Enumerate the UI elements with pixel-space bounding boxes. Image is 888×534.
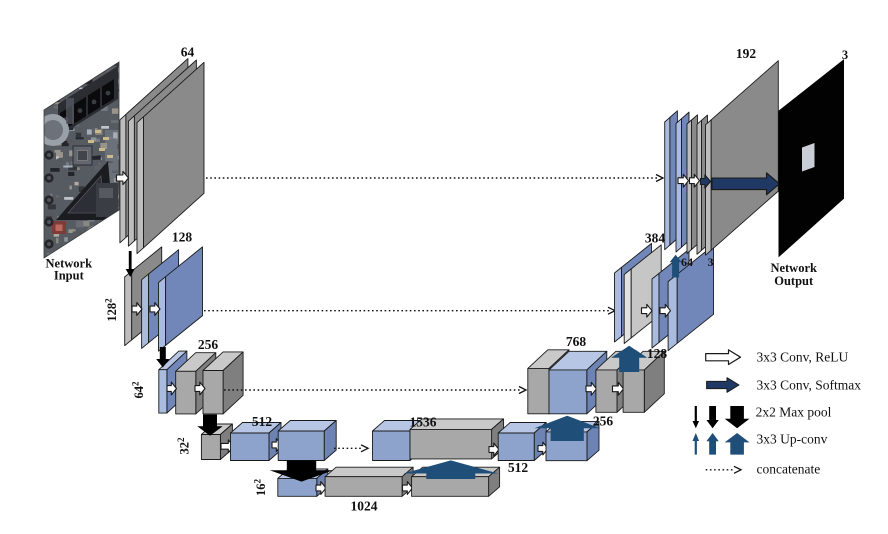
- svg-text:642: 642: [131, 381, 147, 399]
- svg-text:3x3 Conv, ReLU: 3x3 Conv, ReLU: [757, 350, 849, 365]
- svg-text:512: 512: [252, 414, 273, 429]
- svg-text:Output: Output: [774, 274, 814, 288]
- svg-text:1282: 1282: [104, 298, 120, 322]
- svg-text:162: 162: [253, 479, 269, 497]
- svg-text:256: 256: [593, 414, 614, 429]
- svg-text:768: 768: [566, 334, 587, 349]
- svg-text:256: 256: [198, 337, 219, 352]
- svg-text:3: 3: [842, 48, 848, 62]
- svg-text:Input: Input: [54, 269, 85, 283]
- svg-text:64: 64: [181, 45, 195, 60]
- svg-text:192: 192: [736, 46, 757, 61]
- svg-text:1536: 1536: [410, 415, 437, 430]
- svg-text:2x2 Max pool: 2x2 Max pool: [756, 405, 832, 420]
- svg-text:128: 128: [647, 346, 668, 361]
- svg-text:322: 322: [176, 437, 192, 455]
- svg-text:128: 128: [172, 230, 193, 245]
- svg-text:concatenate: concatenate: [757, 462, 821, 477]
- svg-text:64: 64: [681, 255, 693, 269]
- svg-text:512: 512: [508, 460, 529, 475]
- svg-text:384: 384: [645, 231, 666, 246]
- svg-text:3x3 Up-conv: 3x3 Up-conv: [757, 432, 828, 447]
- svg-text:1024: 1024: [351, 499, 378, 514]
- svg-text:3: 3: [708, 255, 714, 269]
- svg-text:3x3 Conv, Softmax: 3x3 Conv, Softmax: [757, 378, 862, 393]
